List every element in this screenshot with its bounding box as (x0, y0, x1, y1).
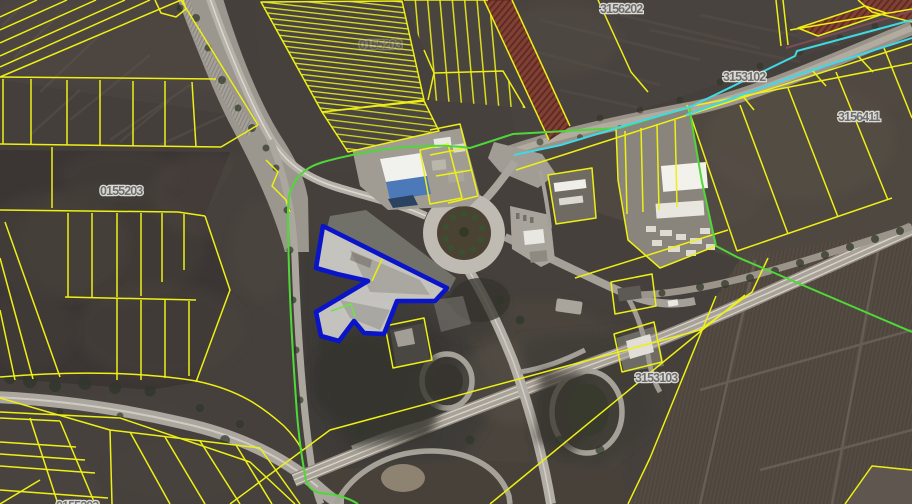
svg-text:0155203: 0155203 (56, 499, 99, 504)
svg-text:0155203: 0155203 (359, 38, 402, 52)
svg-text:0155203: 0155203 (100, 184, 143, 198)
svg-text:3153102: 3153102 (723, 70, 766, 84)
svg-text:3153103: 3153103 (635, 371, 678, 385)
svg-text:3156202: 3156202 (600, 2, 643, 16)
svg-text:3156411: 3156411 (838, 110, 881, 124)
